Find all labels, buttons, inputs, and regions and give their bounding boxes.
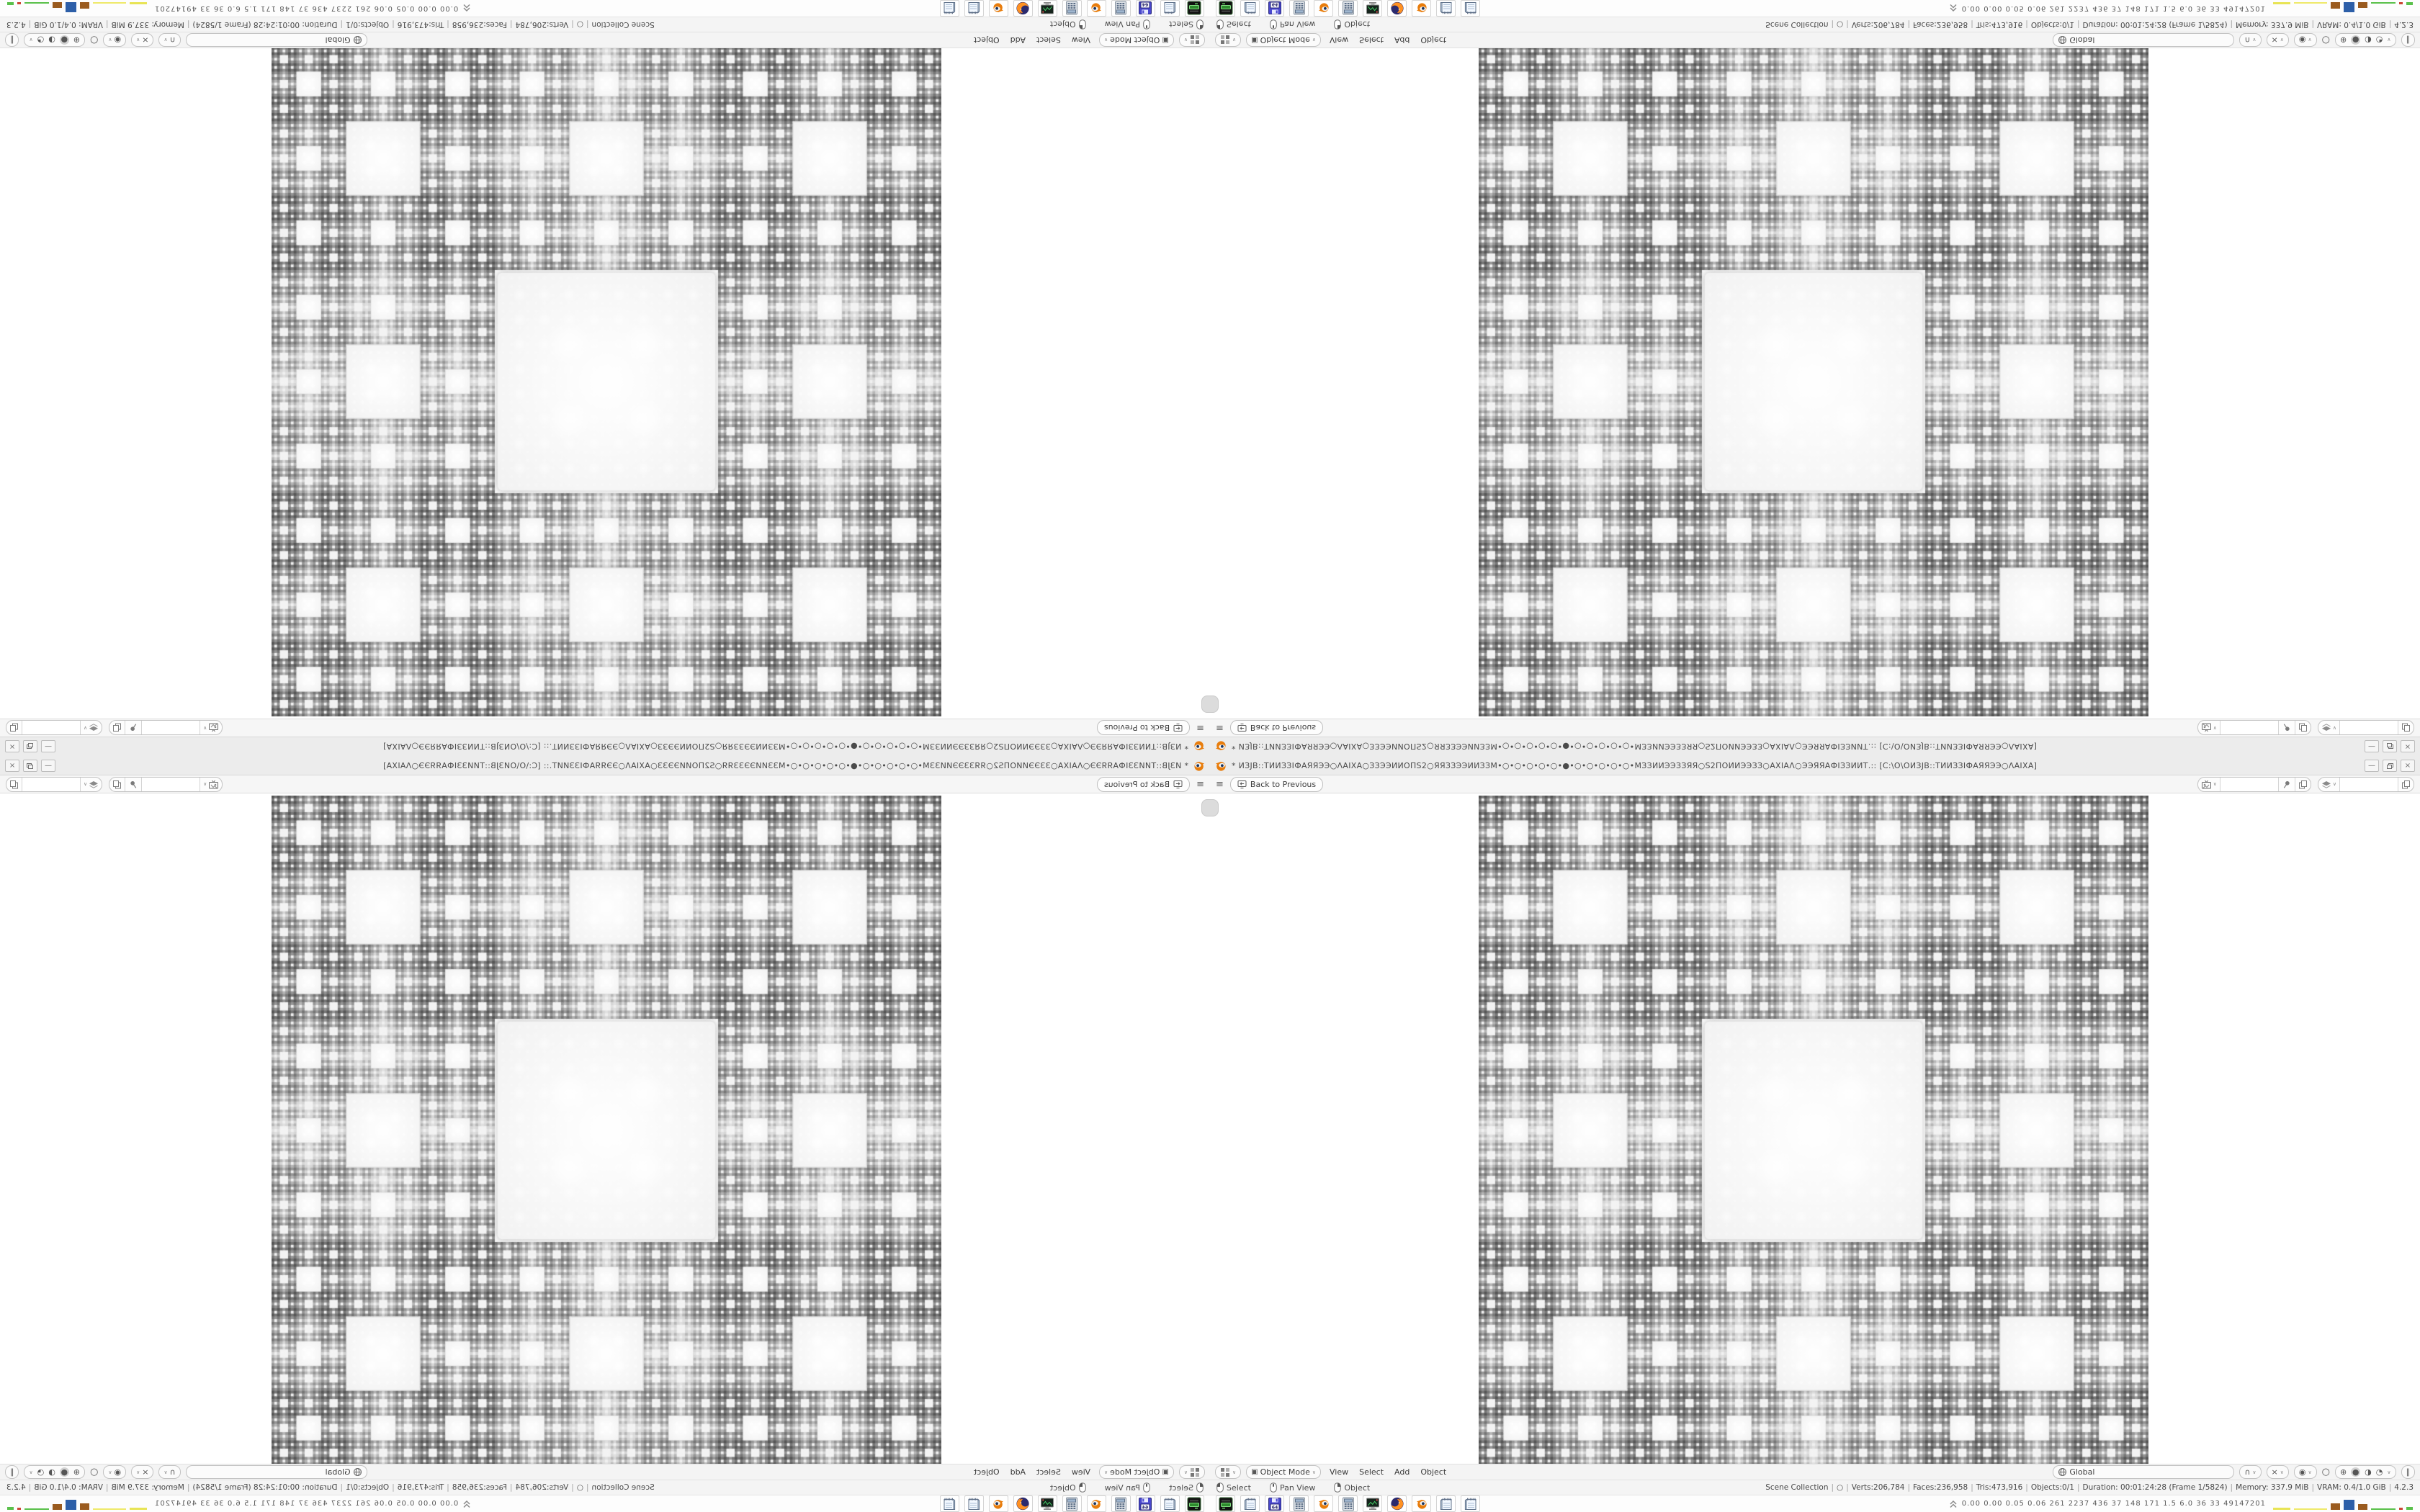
menu-add[interactable]: Add — [1394, 35, 1410, 45]
viewlayer-selector: ∨ — [2318, 721, 2414, 736]
hint-select: Select — [1216, 19, 1251, 30]
chevron-down-icon: ∨ — [2387, 1470, 2390, 1475]
notepad-launcher-icon[interactable] — [1461, 1495, 1480, 1512]
calculator-launcher-icon[interactable] — [1062, 1495, 1082, 1512]
sidebar-toggle-tab[interactable] — [1201, 696, 1210, 713]
shading-wireframe-button[interactable]: ⊕ — [2340, 36, 2347, 44]
mouse-left-icon — [1216, 1482, 1224, 1493]
scene-pin-button[interactable] — [2279, 721, 2295, 735]
hint-pan-view-label: Pan View — [1280, 1483, 1315, 1493]
editor-type-button[interactable]: ∨ — [1215, 1465, 1241, 1479]
mouse-right-icon — [1079, 19, 1086, 30]
screenshot-launcher-icon[interactable] — [1363, 1495, 1382, 1512]
menu-select[interactable]: Select — [1359, 35, 1384, 45]
floppy64-launcher-icon[interactable]: 64 — [1265, 0, 1284, 17]
blender-window: * ИЗЈВ::ТИИЗЗІФАЯЯЭЭ○ΛАІХА○ЗЗЭЭИИОПЅ2○ЯЯ… — [0, 0, 1210, 756]
chevron-down-icon: ∨ — [2308, 37, 2311, 43]
separator: | — [392, 1483, 395, 1492]
notepad-launcher-icon[interactable] — [940, 1495, 959, 1512]
taskbar-launchers: 64 — [940, 0, 1204, 17]
shading-material-button[interactable]: ◑ — [2365, 1468, 2372, 1476]
chevron-down-icon: ∨ — [2252, 37, 2256, 43]
kaleidoscope-stage: * ИЗЈВ::ТИИЗЗІФАЯЯЭЭ○ΛАІХА○ЗЗЭЭИИОПЅ2○ЯЯ… — [0, 0, 2420, 1512]
viewlayer-icon — [2321, 724, 2331, 732]
menu-view[interactable]: View — [1330, 1467, 1348, 1477]
stat-verts-206-784: Verts:206,784 — [516, 20, 569, 29]
overlays-toggle[interactable]: ○ — [2322, 35, 2330, 45]
shading-material-button[interactable]: ◑ — [2365, 36, 2372, 44]
viewlayer-selector: ∨ — [6, 777, 102, 792]
stat-scene-collection: Scene Collection — [1765, 1483, 1828, 1492]
menu-add[interactable]: Add — [1394, 1467, 1410, 1477]
separator: | — [447, 20, 449, 29]
transform-orientation-dropdown[interactable]: Global — [2053, 33, 2234, 47]
menu-view[interactable]: View — [1072, 1467, 1090, 1477]
stat-tris-473-916: Tris:473,916 — [1976, 20, 2023, 29]
shading-rendered-button[interactable]: ◔ — [37, 1468, 45, 1476]
window-controls: — × — [2365, 760, 2415, 772]
sidebar-toggle-tab[interactable] — [1201, 799, 1210, 816]
xray-toggle-button[interactable]: ∥ — [2401, 33, 2416, 47]
monitor-bar — [2344, 2, 2354, 12]
back-to-previous-button[interactable]: Back to Previous — [1230, 721, 1323, 736]
proportional-editing-button[interactable]: × ∨ — [131, 33, 153, 47]
hamburger-menu-icon[interactable]: ≡ — [1216, 779, 1224, 790]
viewport-3d[interactable] — [1210, 793, 2420, 1464]
separator: | — [1846, 1483, 1849, 1492]
scene-new-button[interactable] — [109, 721, 125, 735]
scene-pin-button[interactable] — [125, 721, 141, 735]
notepad-launcher-icon[interactable] — [1436, 1495, 1456, 1512]
orientation-label: Global — [326, 35, 351, 45]
viewlayer-new-button[interactable] — [2398, 778, 2414, 791]
drive-launcher-icon[interactable] — [1216, 1495, 1235, 1512]
floppy64-launcher-icon[interactable]: 64 — [1136, 1495, 1155, 1512]
monitor-bar — [93, 1508, 126, 1510]
scene-new-button[interactable] — [2295, 721, 2311, 735]
system-monitor-head: 0.00 0.00 0.05 0.06 261 2237 436 37 148 … — [154, 1496, 472, 1511]
back-screen-icon — [1173, 780, 1183, 788]
firefox-launcher-icon[interactable] — [1387, 0, 1407, 17]
separator: | — [2389, 1483, 2392, 1492]
proportional-editing-button[interactable]: × ∨ — [2267, 1465, 2289, 1479]
minimize-button[interactable]: — — [41, 760, 55, 772]
calculator-launcher-icon[interactable] — [1289, 0, 1309, 17]
magnet-icon: ∩ — [170, 36, 176, 44]
mode-label: Object Mode — [1260, 1467, 1310, 1477]
transform-orientation-dropdown[interactable]: Global — [186, 1465, 367, 1479]
blender-window: * ИЗЈВ::ТИИЗЗІФАЯЯЭЭ○ΛАІХА○ЗЗЭЭИИОПЅ2○ЯЯ… — [0, 756, 1210, 1512]
viewlayer-icon — [89, 780, 99, 788]
chevron-down-icon: ∨ — [2213, 725, 2217, 731]
editor-type-button[interactable]: ∨ — [1215, 33, 1241, 47]
shading-mode-group: ⊕ ● ◑ ◔ ∨ — [2335, 33, 2396, 47]
minimize-button[interactable]: — — [41, 741, 55, 753]
scene-new-button[interactable] — [2295, 778, 2311, 791]
back-to-previous-button[interactable]: Back to Previous — [1097, 777, 1190, 792]
snapping-button[interactable]: ∩ ∨ — [158, 33, 180, 47]
close-button[interactable]: × — [5, 741, 19, 753]
chevron-down-icon: ∨ — [2333, 725, 2336, 731]
monitor-bar — [2358, 2, 2367, 8]
hint-object-label: Object — [1050, 20, 1076, 30]
fractal-render — [1479, 48, 2148, 716]
fractal-render — [272, 48, 941, 716]
screenshot-launcher-icon[interactable] — [1038, 1495, 1057, 1512]
separator: | — [392, 20, 395, 29]
back-to-previous-button[interactable]: Back to Previous — [1097, 721, 1190, 736]
monitor-bar — [2273, 2, 2290, 4]
magnet-icon: ∩ — [2244, 1468, 2250, 1476]
stat-verts-206-784: Verts:206,784 — [1852, 1483, 1905, 1492]
stat-objects-0-1: Objects:0/1 — [2031, 1483, 2074, 1492]
viewlayer-browse-button[interactable]: ∨ — [2318, 778, 2340, 791]
proportional-editing-button[interactable]: × ∨ — [2267, 33, 2289, 47]
solid-sphere-icon: ● — [61, 1468, 68, 1476]
floppy64-launcher-icon[interactable]: 64 — [1265, 1495, 1284, 1512]
globe-icon — [2058, 35, 2067, 45]
fractal-render — [1479, 796, 2148, 1464]
separator: | — [1907, 1483, 1910, 1492]
status-bar: Select Pan View Object Scene Collection|… — [0, 17, 1210, 32]
copy-icon — [2298, 780, 2308, 789]
hint-pan-view: Pan View — [1105, 19, 1150, 30]
menu-select[interactable]: Select — [1036, 35, 1061, 45]
viewlayer-new-button[interactable] — [6, 778, 22, 791]
object-mode-icon: ▣ — [1162, 36, 1168, 44]
maximize-button[interactable] — [2383, 760, 2397, 772]
scene-name-field[interactable] — [2220, 721, 2279, 735]
monitor-bar — [2399, 2, 2403, 4]
viewlayer-name-field[interactable] — [2340, 778, 2398, 791]
pin-icon — [128, 724, 138, 733]
top-bar: ≡ Back to Previous ∨ ∨ — [1210, 719, 2420, 737]
back-to-previous-button[interactable]: Back to Previous — [1230, 777, 1323, 792]
viewlayer-icon — [89, 724, 99, 732]
system-monitor-head: 0.00 0.00 0.05 0.06 261 2237 436 37 148 … — [154, 1, 472, 16]
monitor-bar — [24, 1508, 49, 1510]
back-to-previous-label: Back to Previous — [1250, 780, 1316, 789]
chevron-down-icon: ∨ — [2308, 1470, 2311, 1475]
gizmo-icon: ◉ — [2299, 1468, 2306, 1476]
notepad-launcher-icon[interactable] — [1160, 0, 1180, 17]
blender-launcher-icon[interactable] — [1314, 0, 1333, 17]
notepad-launcher-icon[interactable] — [964, 1495, 984, 1512]
blender-launcher-icon[interactable] — [1412, 1495, 1431, 1512]
editor-type-button[interactable]: ∨ — [1179, 33, 1205, 47]
screenshot-launcher-icon[interactable] — [1038, 0, 1057, 17]
chevron-down-icon: ∨ — [203, 725, 207, 731]
xray-toggle-button[interactable]: ∥ — [2401, 1465, 2416, 1479]
menu-view[interactable]: View — [1330, 35, 1348, 45]
editor-type-icon — [1190, 1467, 1200, 1477]
svg-text:64: 64 — [1271, 1505, 1278, 1510]
solid-sphere-icon: ● — [2352, 1468, 2359, 1476]
blender-logo-icon — [1193, 760, 1205, 772]
scene-browse-button[interactable]: ∨ — [2198, 778, 2220, 791]
stat-objects-0-1: Objects:0/1 — [346, 20, 389, 29]
scene-browse-button[interactable]: ∨ — [200, 721, 222, 735]
firefox-launcher-icon[interactable] — [1013, 1495, 1033, 1512]
monitor-bar — [24, 2, 49, 4]
copy-icon — [2401, 724, 2411, 733]
shading-mode-group: ⊕ ● ◑ ◔ ∨ — [24, 33, 86, 47]
snapping-button[interactable]: ∩ ∨ — [2239, 33, 2261, 47]
hint-pan-view: Pan View — [1105, 1482, 1150, 1493]
maximize-button[interactable] — [23, 741, 37, 753]
minimize-button[interactable]: — — [2365, 760, 2379, 772]
menu-view[interactable]: View — [1072, 35, 1090, 45]
shading-solid-button[interactable]: ● — [2351, 35, 2360, 45]
drive-launcher-icon[interactable] — [1185, 0, 1204, 17]
notepad-launcher-icon[interactable] — [964, 0, 984, 17]
proportional-editing-button[interactable]: × ∨ — [131, 1465, 153, 1479]
blender-window: * ИЗЈВ::ТИИЗЗІФАЯЯЭЭ○ΛАІХА○ЗЗЭЭИИОПЅ2○ЯЯ… — [1210, 0, 2420, 756]
separator: | — [106, 1483, 109, 1492]
scene-name-field[interactable] — [2220, 778, 2279, 791]
monitor-bar — [17, 2, 21, 4]
gizmo-icon: ◉ — [2299, 36, 2306, 44]
hint-pan-view: Pan View — [1270, 1482, 1315, 1493]
chevron-down-icon: ∨ — [1232, 1470, 1236, 1475]
scene-icon — [2201, 780, 2212, 789]
scene-pin-button[interactable] — [2279, 778, 2295, 791]
shading-solid-button[interactable]: ● — [60, 1467, 69, 1477]
calculator-launcher-icon[interactable] — [1338, 0, 1358, 17]
viewlayer-name-field[interactable] — [22, 778, 80, 791]
mode-dropdown[interactable]: ▣ Object Mode ∨ — [1246, 33, 1321, 47]
gizmos-button[interactable]: ◉ ∨ — [2294, 1465, 2317, 1479]
hint-object-label: Object — [1344, 1483, 1370, 1493]
status-bar: Select Pan View Object Scene Collection|… — [0, 1480, 1210, 1495]
monitor-bar — [93, 2, 126, 4]
shading-material-button[interactable]: ◑ — [48, 36, 55, 44]
drive-launcher-icon[interactable] — [1185, 1495, 1204, 1512]
firefox-launcher-icon[interactable] — [1013, 0, 1033, 17]
notepad-launcher-icon[interactable] — [940, 0, 959, 17]
overlays-toggle[interactable]: ○ — [90, 35, 98, 45]
scene-name-field[interactable] — [141, 778, 200, 791]
mode-dropdown[interactable]: ▣ Object Mode ∨ — [1246, 1465, 1321, 1479]
shading-rendered-button[interactable]: ◔ — [2376, 1468, 2383, 1476]
scene-name-field[interactable] — [141, 721, 200, 735]
stat-faces-236-958: Faces:236,958 — [452, 20, 507, 29]
blender-launcher-icon[interactable] — [1087, 1495, 1106, 1512]
close-button[interactable]: × — [2401, 741, 2415, 753]
shading-rendered-button[interactable]: ◔ — [37, 36, 45, 44]
monitor-bars — [7, 1, 147, 15]
snapping-button[interactable]: ∩ ∨ — [158, 1465, 180, 1479]
monitor-bar — [7, 2, 14, 5]
screenshot-launcher-icon[interactable] — [1363, 0, 1382, 17]
snapping-button[interactable]: ∩ ∨ — [2239, 1465, 2261, 1479]
calculator-launcher-icon[interactable] — [1062, 0, 1082, 17]
hamburger-menu-icon[interactable]: ≡ — [1216, 723, 1224, 734]
transform-orientation-dropdown[interactable]: Global — [2053, 1465, 2234, 1479]
stat-memory-337-9-mib: Memory: 337.9 MiB — [112, 1483, 184, 1492]
chevron-down-icon: ∨ — [1232, 37, 1236, 43]
mouse-left-icon — [1196, 1482, 1204, 1493]
notepad-launcher-icon[interactable] — [1160, 1495, 1180, 1512]
scene-statistics: Scene Collection|○|Verts:206,784|Faces:2… — [1765, 20, 2414, 29]
mode-dropdown[interactable]: ▣ Object Mode ∨ — [1099, 33, 1174, 47]
xray-toggle-button[interactable]: ∥ — [5, 33, 19, 47]
shading-wireframe-button[interactable]: ⊕ — [2340, 1468, 2347, 1476]
chevron-down-icon: ∨ — [1312, 1470, 1316, 1475]
scene-new-button[interactable] — [109, 778, 125, 791]
floppy64-launcher-icon[interactable]: 64 — [1136, 0, 1155, 17]
back-screen-icon — [1237, 780, 1247, 788]
window-title: * ИЗЈВ::ТИИЗЗІФАЯЯЭЭ○ΛАІХА○ЗЗЭЭИИОПЅ2○ЯЯ… — [1232, 761, 2359, 770]
system-monitor-head: 0.00 0.00 0.05 0.06 261 2237 436 37 148 … — [1948, 1, 2266, 16]
menu-object[interactable]: Object — [1420, 1467, 1446, 1477]
viewlayer-browse-button[interactable]: ∨ — [2318, 721, 2340, 735]
menu-select[interactable]: Select — [1359, 1467, 1384, 1477]
chevron-down-icon: ∨ — [2280, 1470, 2284, 1475]
viewport-3d[interactable] — [1210, 48, 2420, 719]
restore-icon — [2387, 763, 2393, 768]
menu-add[interactable]: Add — [1010, 1467, 1026, 1477]
viewlayer-name-field[interactable] — [2340, 721, 2398, 735]
system-monitor: 0.00 0.00 0.05 0.06 261 2237 436 37 148 … — [1948, 1, 2414, 16]
menu-object[interactable]: Object — [1420, 35, 1446, 45]
load-monitor-icon — [1948, 1498, 1958, 1509]
sidebar-toggle-tab[interactable] — [1210, 799, 1219, 816]
menu-object[interactable]: Object — [974, 35, 1000, 45]
back-screen-icon — [1173, 724, 1183, 732]
stat--: ○ — [1837, 20, 1843, 29]
menu-add[interactable]: Add — [1010, 35, 1026, 45]
chevron-down-icon: ∨ — [2280, 37, 2284, 43]
blender-launcher-icon[interactable] — [989, 1495, 1008, 1512]
hamburger-menu-icon[interactable]: ≡ — [1196, 723, 1204, 734]
stat-4-2-3: 4.2.3 — [2394, 1483, 2414, 1492]
shading-material-button[interactable]: ◑ — [48, 1468, 55, 1476]
monitor-bars — [2273, 1, 2413, 15]
viewlayer-new-button[interactable] — [6, 721, 22, 735]
xray-toggle-button[interactable]: ∥ — [5, 1465, 19, 1479]
shading-wireframe-button[interactable]: ⊕ — [73, 1468, 80, 1476]
calculator-launcher-icon[interactable] — [1338, 1495, 1358, 1512]
mouse-middle-icon — [1270, 1482, 1277, 1493]
system-monitor: 0.00 0.00 0.05 0.06 261 2237 436 37 148 … — [1948, 1496, 2414, 1511]
restore-icon — [27, 744, 33, 750]
close-button[interactable]: × — [2401, 760, 2415, 772]
viewlayer-new-button[interactable] — [2398, 721, 2414, 735]
notepad-launcher-icon[interactable] — [1240, 0, 1260, 17]
monitor-bar — [2294, 2, 2327, 4]
separator: | — [2311, 20, 2314, 29]
gizmos-button[interactable]: ◉ ∨ — [103, 33, 126, 47]
shading-solid-button[interactable]: ● — [60, 35, 69, 45]
scene-statistics: Scene Collection|○|Verts:206,784|Faces:2… — [6, 20, 655, 29]
drive-launcher-icon[interactable] — [1216, 0, 1235, 17]
viewlayer-browse-button[interactable]: ∨ — [80, 721, 102, 735]
notepad-launcher-icon[interactable] — [1436, 0, 1456, 17]
maximize-button[interactable] — [23, 760, 37, 772]
shading-mode-group: ⊕ ● ◑ ◔ ∨ — [2335, 1465, 2396, 1479]
os-taskbar: 64 0.00 0.00 0.05 0.06 261 2237 436 37 1… — [0, 0, 1210, 17]
mode-dropdown[interactable]: ▣ Object Mode ∨ — [1099, 1465, 1174, 1479]
notepad-launcher-icon[interactable] — [1240, 1495, 1260, 1512]
monitor-bar — [2331, 1503, 2340, 1510]
separator: | — [1832, 20, 1834, 29]
back-screen-icon — [1237, 724, 1247, 732]
viewport-menus: ViewSelectAddObject — [974, 35, 1090, 45]
monitor-values: 0.00 0.00 0.05 0.06 261 2237 436 37 148 … — [1962, 1496, 2266, 1511]
copy-icon — [9, 780, 19, 789]
gizmos-button[interactable]: ◉ ∨ — [2294, 33, 2317, 47]
scene-browse-button[interactable]: ∨ — [200, 778, 222, 791]
blender-launcher-icon[interactable] — [1314, 1495, 1333, 1512]
stat-memory-337-9-mib: Memory: 337.9 MiB — [2236, 20, 2308, 29]
viewport-menus: ViewSelectAddObject — [974, 1467, 1090, 1477]
editor-type-icon — [1220, 1467, 1230, 1477]
maximize-button[interactable] — [2383, 741, 2397, 753]
globe-icon — [2058, 1467, 2067, 1477]
pin-icon — [2282, 780, 2292, 789]
system-monitor: 0.00 0.00 0.05 0.06 261 2237 436 37 148 … — [6, 1, 472, 16]
viewport-3d[interactable] — [0, 793, 1210, 1464]
sidebar-toggle-tab[interactable] — [1210, 696, 1219, 713]
transform-orientation-dropdown[interactable]: Global — [186, 33, 367, 47]
scene-browse-button[interactable]: ∨ — [2198, 721, 2220, 735]
menu-object[interactable]: Object — [974, 1467, 1000, 1477]
quadrant-top-left: * ИЗЈВ::ТИИЗЗІФАЯЯЭЭ○ΛАІХА○ЗЗЭЭИИОПЅ2○ЯЯ… — [0, 0, 1210, 756]
overlays-toggle[interactable]: ○ — [2322, 1467, 2330, 1477]
calculator-launcher-icon[interactable] — [1289, 1495, 1309, 1512]
separator: | — [2077, 20, 2080, 29]
stat-duration-00-01-24-28-frame-1-5824-: Duration: 00:01:24:28 (Frame 1/5824) — [192, 1483, 337, 1492]
viewlayer-selector: ∨ — [6, 721, 102, 736]
shading-solid-button[interactable]: ● — [2351, 1467, 2360, 1477]
shading-wireframe-button[interactable]: ⊕ — [73, 36, 80, 44]
overlays-toggle[interactable]: ○ — [90, 1467, 98, 1477]
scene-icon — [208, 780, 219, 789]
close-button[interactable]: × — [5, 760, 19, 772]
minimize-button[interactable]: — — [2365, 741, 2379, 753]
viewport-header: ∨ ▣ Object Mode ∨ ViewSelectAddObject Gl… — [1210, 1464, 2420, 1480]
hamburger-menu-icon[interactable]: ≡ — [1196, 779, 1204, 790]
stat-4-2-3: 4.2.3 — [6, 1483, 26, 1492]
gizmos-button[interactable]: ◉ ∨ — [103, 1465, 126, 1479]
editor-type-icon — [1190, 35, 1200, 45]
stat-scene-collection: Scene Collection — [1765, 20, 1828, 29]
calculator-launcher-icon[interactable] — [1111, 1495, 1131, 1512]
mouse-right-icon — [1334, 19, 1341, 30]
blender-launcher-icon[interactable] — [989, 0, 1008, 17]
scene-pin-button[interactable] — [125, 778, 141, 791]
menu-select[interactable]: Select — [1036, 1467, 1061, 1477]
firefox-launcher-icon[interactable] — [1387, 1495, 1407, 1512]
notepad-launcher-icon[interactable] — [1461, 0, 1480, 17]
editor-type-button[interactable]: ∨ — [1179, 1465, 1205, 1479]
svg-text:64: 64 — [1142, 2, 1149, 7]
hint-select-label: Select — [1227, 20, 1251, 30]
viewport-3d[interactable] — [0, 48, 1210, 719]
viewlayer-name-field[interactable] — [22, 721, 80, 735]
stat-4-2-3: 4.2.3 — [6, 20, 26, 29]
shading-rendered-button[interactable]: ◔ — [2376, 36, 2383, 44]
hint-object: Object — [1334, 19, 1370, 30]
viewlayer-browse-button[interactable]: ∨ — [80, 778, 102, 791]
chevron-down-icon: ∨ — [2333, 781, 2336, 787]
chevron-down-icon: ∨ — [2213, 781, 2217, 787]
gizmo-icon: ◉ — [115, 36, 122, 44]
calculator-launcher-icon[interactable] — [1111, 0, 1131, 17]
blender-launcher-icon[interactable] — [1412, 0, 1431, 17]
blender-launcher-icon[interactable] — [1087, 0, 1106, 17]
